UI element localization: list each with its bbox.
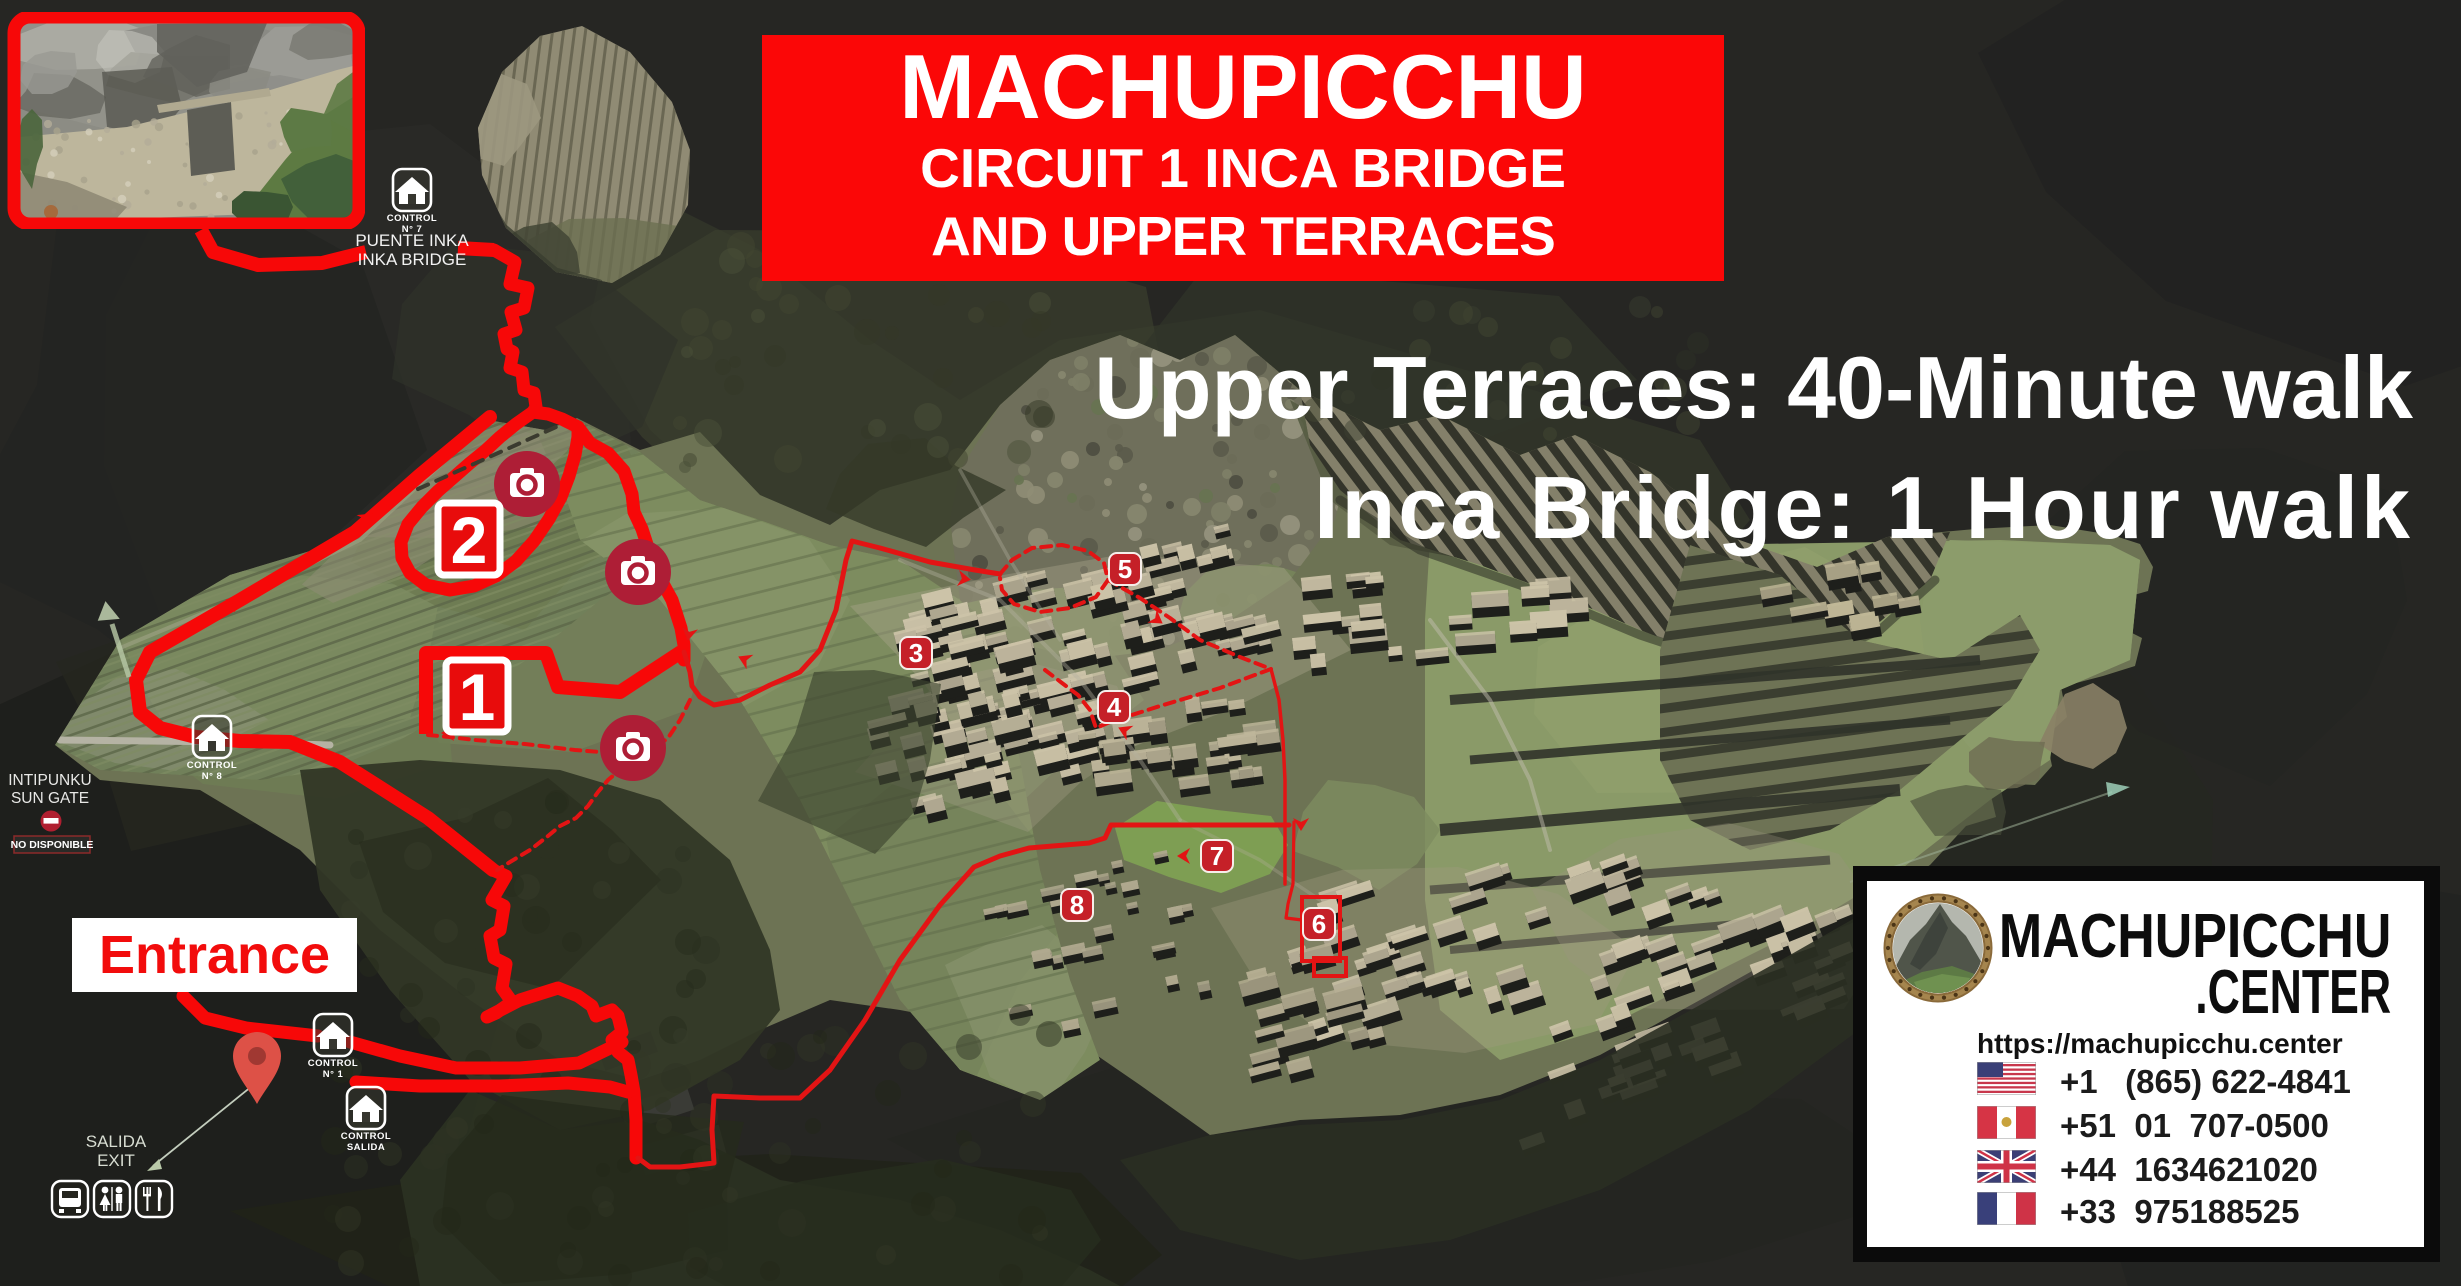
svg-text:5: 5 (1118, 554, 1132, 584)
svg-text:CONTROL: CONTROL (187, 760, 237, 771)
svg-text:7: 7 (1210, 841, 1224, 871)
svg-text:N° 8: N° 8 (202, 771, 223, 782)
svg-text:NO DISPONIBLE: NO DISPONIBLE (11, 839, 94, 851)
svg-text:INTIPUNKU: INTIPUNKU (8, 772, 92, 789)
svg-text:PUENTE INKA: PUENTE INKA (355, 231, 469, 250)
svg-text:6: 6 (1312, 909, 1326, 939)
svg-text:SUN GATE: SUN GATE (11, 790, 89, 807)
svg-text:EXIT: EXIT (97, 1151, 135, 1170)
svg-text:8: 8 (1070, 890, 1084, 920)
svg-text:2: 2 (451, 503, 488, 577)
svg-text:SALIDA: SALIDA (86, 1132, 147, 1151)
svg-text:SALIDA: SALIDA (347, 1142, 385, 1153)
svg-text:CONTROL: CONTROL (387, 213, 437, 224)
svg-text:INKA BRIDGE: INKA BRIDGE (358, 250, 467, 269)
svg-text:1: 1 (459, 660, 496, 734)
svg-text:CONTROL: CONTROL (341, 1131, 391, 1142)
svg-text:3: 3 (909, 638, 923, 668)
svg-text:N° 1: N° 1 (323, 1069, 344, 1080)
svg-text:CONTROL: CONTROL (308, 1058, 358, 1069)
svg-text:4: 4 (1107, 692, 1122, 722)
